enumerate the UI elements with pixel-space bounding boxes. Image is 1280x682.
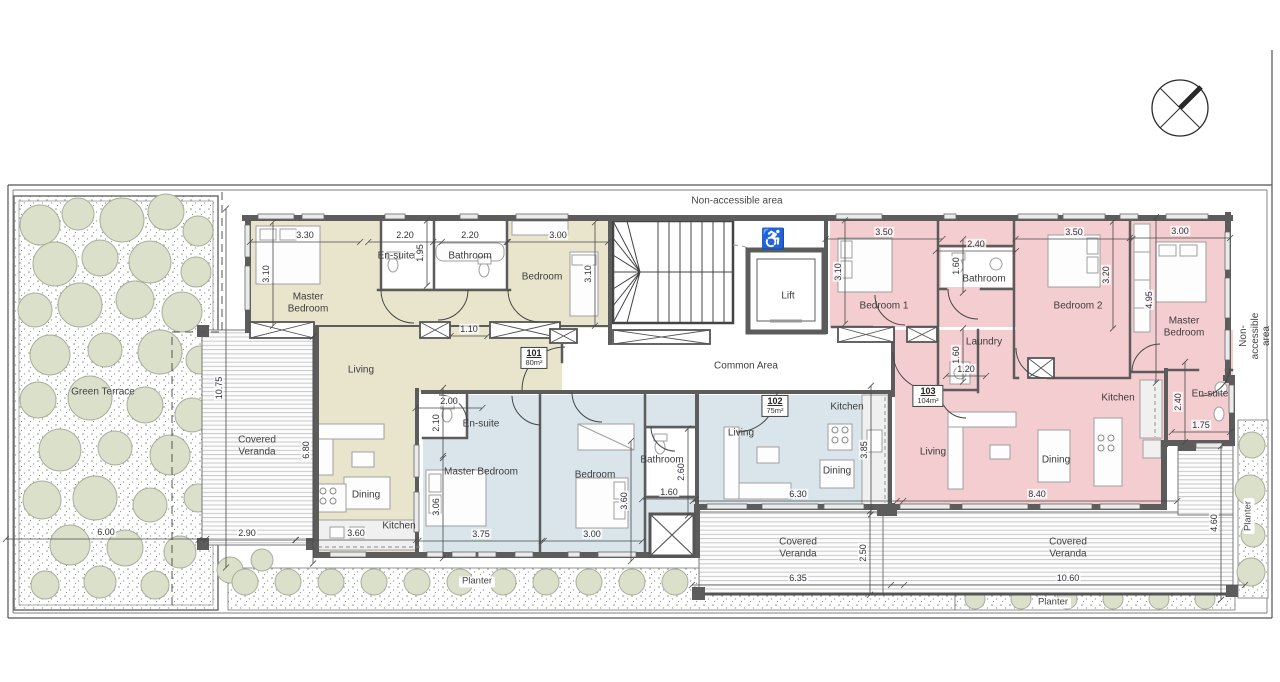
lift-shaft: [748, 250, 824, 332]
north-arrow-icon: [1152, 80, 1208, 136]
floor-plan: 3.302.202.203.001.953.103.101.1010.756.8…: [0, 0, 1280, 682]
floor-plan-graphics: [0, 0, 1280, 682]
